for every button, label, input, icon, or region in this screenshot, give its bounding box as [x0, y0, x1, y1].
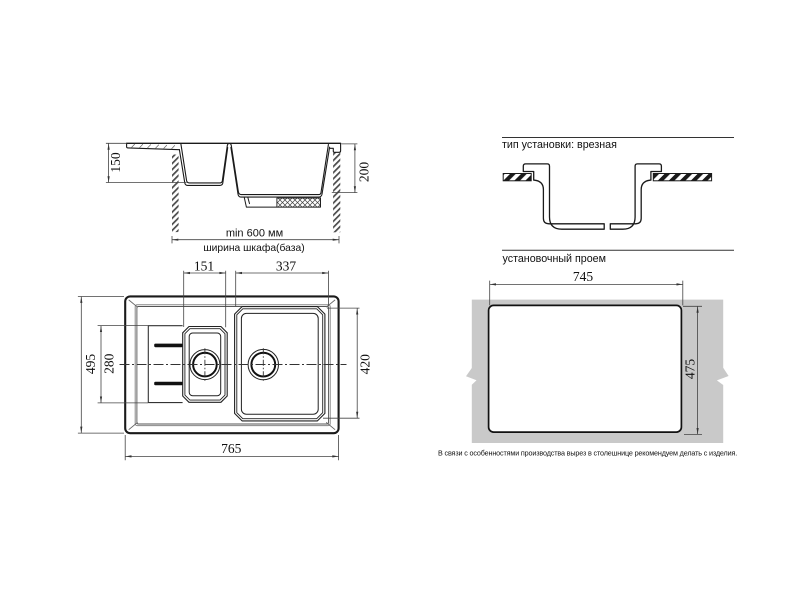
svg-text:установочный проем: установочный проем — [503, 253, 606, 265]
svg-text:150: 150 — [108, 152, 123, 173]
svg-text:420: 420 — [357, 354, 372, 375]
svg-text:151: 151 — [194, 258, 214, 273]
svg-text:475: 475 — [683, 359, 698, 380]
svg-text:745: 745 — [573, 269, 594, 284]
svg-text:ширина шкафа(база): ширина шкафа(база) — [203, 242, 304, 254]
svg-text:В связи с особенностями произв: В связи с особенностями производства выр… — [438, 448, 737, 457]
svg-text:min 600 мм: min 600 мм — [226, 228, 283, 240]
svg-text:тип установки: врезная: тип установки: врезная — [502, 139, 617, 151]
svg-text:337: 337 — [276, 258, 297, 273]
svg-text:765: 765 — [221, 441, 242, 456]
svg-text:495: 495 — [83, 354, 98, 375]
svg-text:280: 280 — [102, 353, 117, 374]
svg-text:200: 200 — [356, 162, 371, 183]
